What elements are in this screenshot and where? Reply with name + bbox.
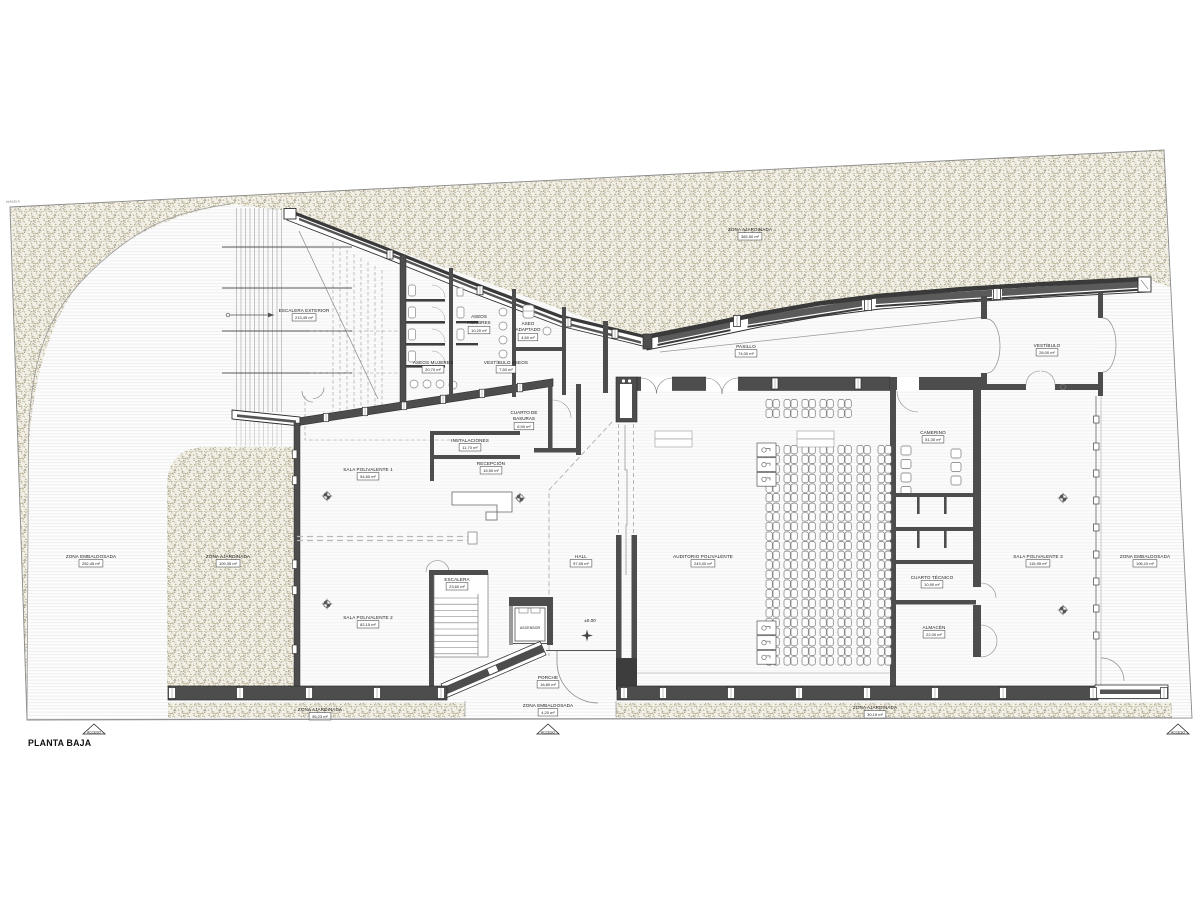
svg-text:BASURAS: BASURAS bbox=[513, 416, 535, 421]
svg-text:30,15 m²: 30,15 m² bbox=[867, 712, 883, 717]
svg-text:7,50 m²: 7,50 m² bbox=[499, 367, 513, 372]
svg-text:ZONA EMBALDOSADA: ZONA EMBALDOSADA bbox=[1120, 554, 1171, 559]
svg-text:CUARTO DE: CUARTO DE bbox=[511, 410, 538, 415]
svg-text:SALA POLIVALENTE 3: SALA POLIVALENTE 3 bbox=[1013, 554, 1063, 559]
svg-text:109,35 m²: 109,35 m² bbox=[219, 561, 238, 566]
svg-text:ESCALERA EXTERIOR: ESCALERA EXTERIOR bbox=[279, 308, 330, 313]
svg-text:±0.00: ±0.00 bbox=[584, 618, 596, 623]
svg-text:PARCELA: PARCELA bbox=[6, 199, 20, 204]
svg-text:ASEO: ASEO bbox=[522, 321, 535, 326]
svg-text:213,45 m²: 213,45 m² bbox=[295, 315, 314, 320]
svg-text:10,20 m²: 10,20 m² bbox=[471, 328, 487, 333]
svg-text:VESTÍBULO: VESTÍBULO bbox=[1034, 342, 1061, 348]
svg-text:20,70 m²: 20,70 m² bbox=[425, 367, 441, 372]
svg-text:CAMERINO: CAMERINO bbox=[920, 430, 946, 435]
svg-text:PORCHE: PORCHE bbox=[538, 675, 558, 680]
svg-text:11,70 m²: 11,70 m² bbox=[462, 445, 478, 450]
svg-text:115,95 m²: 115,95 m² bbox=[1029, 561, 1047, 566]
svg-text:22,00 m²: 22,00 m² bbox=[926, 632, 942, 637]
svg-text:4,60 m²: 4,60 m² bbox=[521, 335, 535, 340]
svg-text:4,20 m²: 4,20 m² bbox=[541, 710, 555, 715]
svg-text:6,90 m²: 6,90 m² bbox=[517, 424, 531, 429]
svg-text:ASEOS: ASEOS bbox=[471, 314, 487, 319]
svg-text:97,55 m²: 97,55 m² bbox=[573, 561, 589, 566]
svg-text:252,45 m²: 252,45 m² bbox=[82, 561, 101, 566]
svg-text:16,80 m²: 16,80 m² bbox=[540, 682, 556, 687]
svg-text:VESTÍBULO ASEOS: VESTÍBULO ASEOS bbox=[484, 359, 528, 365]
svg-text:ZONA AJARDINADA: ZONA AJARDINADA bbox=[298, 707, 343, 712]
svg-text:10,90 m²: 10,90 m² bbox=[924, 582, 940, 587]
svg-text:RECEPCIÓN: RECEPCIÓN bbox=[477, 460, 505, 466]
svg-text:ESCALERA: ESCALERA bbox=[444, 577, 470, 582]
svg-text:ADAPTADO: ADAPTADO bbox=[516, 327, 541, 332]
svg-text:ZONA EMBALDOSADA: ZONA EMBALDOSADA bbox=[523, 703, 574, 708]
svg-text:82,15 m²: 82,15 m² bbox=[360, 622, 376, 627]
svg-text:ALMACÉN: ALMACÉN bbox=[923, 624, 946, 630]
svg-text:CUARTO TÉCNICO: CUARTO TÉCNICO bbox=[911, 574, 954, 580]
svg-text:95,23 m²: 95,23 m² bbox=[312, 714, 328, 719]
svg-text:AUDITORIO POLIVALENTE: AUDITORIO POLIVALENTE bbox=[673, 554, 733, 559]
svg-text:HALL: HALL bbox=[575, 554, 587, 559]
svg-text:54,60 m²: 54,60 m² bbox=[360, 474, 376, 479]
svg-text:15,50 m²: 15,50 m² bbox=[483, 468, 499, 473]
svg-text:ZONA EMBALDOSADA: ZONA EMBALDOSADA bbox=[66, 554, 117, 559]
svg-text:PASILLO: PASILLO bbox=[736, 344, 756, 349]
svg-text:ACCESO: ACCESO bbox=[541, 730, 555, 734]
svg-text:ZONA AJARDINADA: ZONA AJARDINADA bbox=[853, 705, 898, 710]
svg-text:51,30 m²: 51,30 m² bbox=[925, 437, 941, 442]
svg-text:ACCESO: ACCESO bbox=[1171, 730, 1185, 734]
svg-text:74,00 m²: 74,00 m² bbox=[738, 351, 754, 356]
svg-text:ACCESO: ACCESO bbox=[87, 730, 101, 734]
svg-text:365,50 m²: 365,50 m² bbox=[741, 234, 760, 239]
svg-text:SALA POLIVALENTE 1: SALA POLIVALENTE 1 bbox=[343, 467, 393, 472]
svg-text:23,60 m²: 23,60 m² bbox=[449, 584, 465, 589]
svg-text:106,10 m²: 106,10 m² bbox=[1136, 561, 1155, 566]
svg-text:ZONA AJARDINADA: ZONA AJARDINADA bbox=[728, 227, 773, 232]
svg-text:SALA POLIVALENTE 2: SALA POLIVALENTE 2 bbox=[343, 615, 393, 620]
svg-text:ZONA AJARDINADA: ZONA AJARDINADA bbox=[206, 554, 251, 559]
svg-text:PLANTA BAJA: PLANTA BAJA bbox=[28, 738, 92, 748]
svg-text:ASEOS MUJERES: ASEOS MUJERES bbox=[413, 360, 453, 365]
svg-text:28,00 m²: 28,00 m² bbox=[1039, 350, 1055, 355]
svg-text:243,00 m²: 243,00 m² bbox=[694, 561, 713, 566]
svg-text:HOMBRES: HOMBRES bbox=[467, 320, 490, 325]
svg-text:ASCENSOR: ASCENSOR bbox=[520, 626, 541, 630]
svg-text:INSTALACIONES: INSTALACIONES bbox=[451, 438, 489, 443]
